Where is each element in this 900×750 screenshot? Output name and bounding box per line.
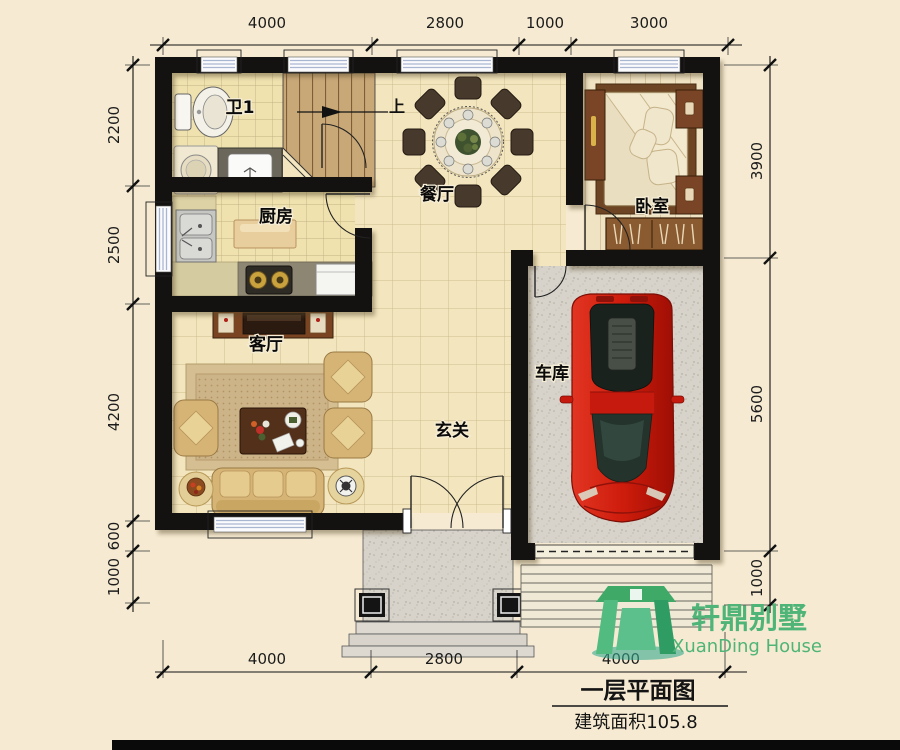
dining-window	[397, 50, 497, 73]
dim-left-2: 2500	[105, 226, 123, 264]
bed	[604, 92, 688, 206]
dim-top-3: 1000	[526, 14, 564, 32]
kitchen-label: 厨房	[259, 206, 293, 227]
dim-right-2: 5600	[748, 385, 766, 423]
logo-icon	[592, 586, 684, 660]
logo-brand-en: XuanDing House	[672, 636, 822, 657]
dresser	[585, 90, 605, 180]
dim-left-1: 2200	[105, 106, 123, 144]
dim-top-2: 2800	[426, 14, 464, 32]
bedroom-window	[614, 50, 684, 73]
side-table-left	[179, 472, 213, 506]
bath-window	[197, 50, 241, 73]
stair-window	[284, 50, 353, 73]
sofa	[212, 468, 324, 516]
area-label: 建筑面积105.8	[574, 712, 698, 733]
dim-bottom-1: 4000	[248, 650, 286, 668]
porch	[342, 530, 534, 657]
garage-label: 车库	[535, 363, 569, 384]
coffee-table	[240, 408, 306, 454]
kitchen-window	[146, 202, 172, 276]
dim-bottom-2: 2800	[425, 650, 463, 668]
fridge	[316, 264, 358, 295]
plan-title: 一层平面图	[581, 678, 696, 704]
logo-brand-cn: 轩鼎别墅	[691, 601, 807, 635]
foyer-label: 玄关	[435, 420, 469, 441]
dim-left-3: 4200	[105, 393, 123, 431]
stairs-up-label: 上	[389, 97, 405, 116]
bedroom-label: 卧室	[635, 196, 669, 217]
border-bar	[112, 740, 900, 750]
title-block: 一层平面图 建筑面积105.8	[112, 678, 900, 750]
garage-door	[535, 545, 694, 558]
nightstand-top	[676, 90, 703, 128]
armchair-right-top	[324, 352, 372, 402]
staircase	[283, 73, 388, 187]
armchair-right-bottom	[324, 408, 372, 458]
toilet	[175, 87, 233, 137]
armchair-left	[174, 400, 218, 456]
side-table-right	[328, 468, 364, 504]
dim-right-3: 1000	[748, 559, 766, 597]
dim-top-1: 4000	[248, 14, 286, 32]
floor-plan-page: 4000 2800 1000 3000 2200 2500 4200 600 1…	[0, 0, 900, 750]
porch-column-left	[355, 589, 389, 621]
stove	[246, 266, 292, 294]
nightstand-bottom	[676, 176, 703, 214]
sports-car	[560, 294, 684, 522]
dim-right-1: 3900	[748, 142, 766, 180]
bath-label: 卫1	[226, 98, 255, 118]
dining-label: 餐厅	[420, 184, 454, 205]
living-label: 客厅	[248, 334, 283, 355]
dim-left-5: 1000	[105, 558, 123, 596]
dim-top-4: 3000	[630, 14, 668, 32]
floor-plan-drawing: 4000 2800 1000 3000 2200 2500 4200 600 1…	[0, 0, 900, 750]
dim-left-4: 600	[105, 522, 123, 551]
kitchen-sink	[176, 210, 216, 262]
tv-cabinet	[213, 310, 333, 338]
